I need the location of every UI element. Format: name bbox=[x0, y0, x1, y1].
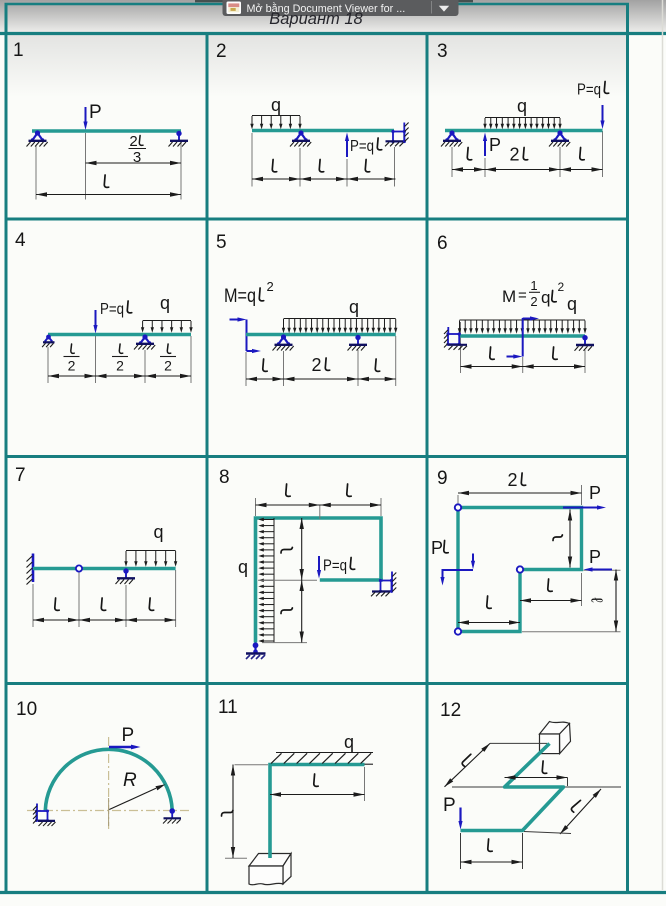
svg-text:P=q: P=q bbox=[100, 301, 124, 318]
svg-text:1: 1 bbox=[13, 40, 24, 61]
svg-text:2: 2 bbox=[116, 358, 124, 374]
svg-text:2: 2 bbox=[530, 294, 537, 309]
svg-text:4: 4 bbox=[15, 230, 26, 251]
svg-text:=: = bbox=[518, 287, 527, 304]
svg-text:R: R bbox=[123, 770, 137, 791]
svg-text:q: q bbox=[160, 293, 170, 313]
svg-text:q: q bbox=[271, 95, 281, 115]
svg-text:P: P bbox=[443, 795, 456, 816]
svg-text:q: q bbox=[344, 732, 354, 752]
svg-text:11: 11 bbox=[218, 697, 238, 718]
svg-text:P: P bbox=[489, 135, 501, 155]
svg-text:12: 12 bbox=[440, 700, 461, 721]
svg-text:P: P bbox=[589, 547, 601, 567]
svg-text:7: 7 bbox=[15, 465, 26, 486]
svg-text:P: P bbox=[89, 102, 102, 123]
svg-text:2: 2 bbox=[311, 355, 321, 375]
svg-text:M: M bbox=[502, 287, 516, 306]
svg-text:q: q bbox=[238, 557, 248, 577]
svg-text:5: 5 bbox=[216, 232, 227, 253]
svg-text:9: 9 bbox=[437, 468, 448, 489]
svg-text:2: 2 bbox=[129, 133, 137, 150]
svg-text:P: P bbox=[589, 483, 601, 503]
svg-text:q: q bbox=[349, 297, 359, 317]
svg-text:M=q: M=q bbox=[224, 286, 256, 307]
svg-text:2: 2 bbox=[267, 279, 274, 294]
svg-text:6: 6 bbox=[437, 233, 448, 254]
svg-text:2: 2 bbox=[216, 41, 227, 62]
svg-text:q: q bbox=[517, 96, 527, 116]
svg-text:2: 2 bbox=[68, 358, 76, 374]
svg-text:q: q bbox=[154, 522, 164, 542]
svg-text:q: q bbox=[541, 288, 550, 307]
svg-text:P: P bbox=[431, 538, 443, 558]
svg-text:2: 2 bbox=[558, 280, 565, 294]
svg-text:P=q: P=q bbox=[323, 558, 347, 575]
svg-text:3: 3 bbox=[437, 41, 448, 62]
svg-text:q: q bbox=[567, 294, 577, 314]
svg-text:Вариант 18: Вариант 18 bbox=[269, 10, 363, 28]
svg-text:3: 3 bbox=[133, 149, 141, 166]
svg-text:P=q: P=q bbox=[350, 138, 374, 155]
svg-text:2: 2 bbox=[507, 470, 517, 490]
svg-text:2: 2 bbox=[509, 145, 519, 165]
svg-text:P=q: P=q bbox=[577, 82, 601, 99]
svg-text:2: 2 bbox=[164, 358, 172, 374]
svg-text:10: 10 bbox=[16, 699, 37, 720]
svg-text:8: 8 bbox=[219, 467, 230, 488]
svg-text:1: 1 bbox=[530, 278, 537, 293]
svg-text:P: P bbox=[122, 725, 135, 746]
svg-text:ℓ: ℓ bbox=[588, 597, 605, 602]
